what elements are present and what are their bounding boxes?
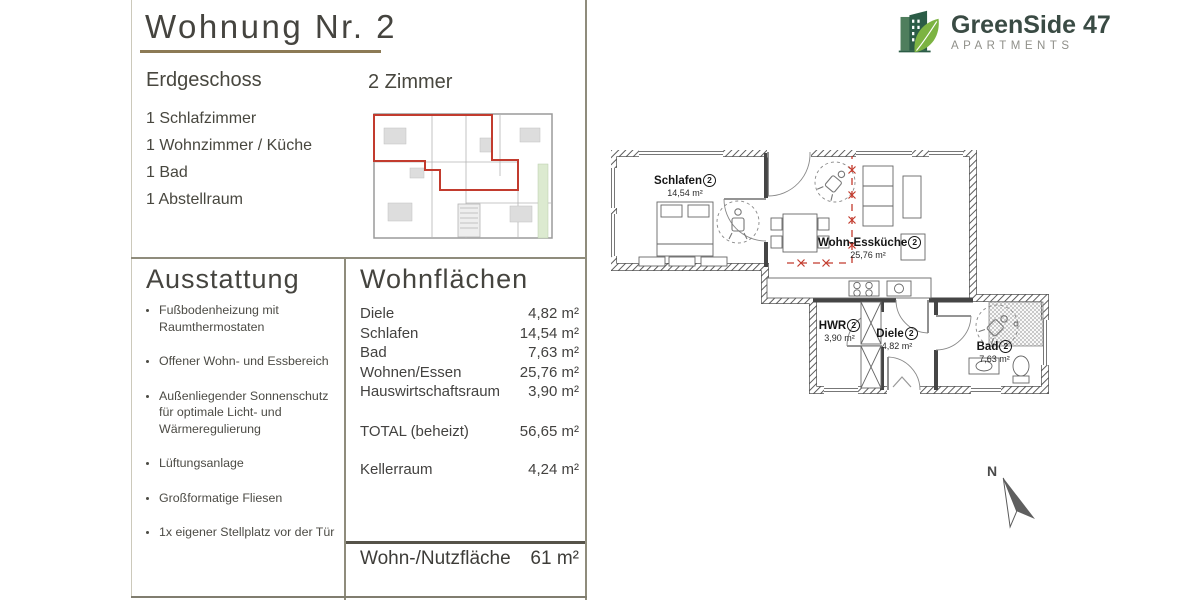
row-value: 14,54 m² [520, 324, 579, 344]
room-list-item: 1 Schlafzimmer [146, 105, 312, 132]
room-list: 1 Schlafzimmer 1 Wohnzimmer / Küche 1 Ba… [146, 105, 312, 213]
room-label-wohn-esskueche: Wohn-Essküche2 25,76 m² [818, 236, 918, 260]
keller-value: 4,24 m² [528, 460, 579, 480]
room-area: 4,82 m² [857, 341, 937, 351]
logo-text: GreenSide 47 APARTMENTS [951, 12, 1111, 52]
ausstattung-item: Großformatige Fliesen [159, 490, 339, 507]
rooms-count-label: 2 Zimmer [368, 71, 452, 94]
page-title: Wohnung Nr. 2 [145, 8, 397, 46]
ausstattung-item: Außenliegender Sonnenschutz für optimale… [159, 388, 339, 438]
logo-name: GreenSide 47 [951, 12, 1111, 38]
table-row: Hauswirtschaftsraum 3,90 m² [360, 382, 579, 402]
divider-bottom [131, 596, 587, 598]
row-label: Wohnen/Essen [360, 363, 461, 383]
total-label: TOTAL (beheizt) [360, 422, 469, 442]
ausstattung-item: Offener Wohn- und Essbereich [159, 353, 339, 370]
row-value: 4,82 m² [528, 304, 579, 324]
table-row: Diele 4,82 m² [360, 304, 579, 324]
room-number-badge: 2 [703, 174, 716, 187]
wohnflaechen-heading: Wohnflächen [360, 264, 528, 295]
room-label-bad: Bad2 7,63 m² [957, 340, 1032, 364]
title-underline [140, 50, 381, 53]
room-area: 7,63 m² [957, 354, 1032, 364]
summary-label: Wohn-/Nutzfläche [360, 549, 511, 569]
total-value: 56,65 m² [520, 422, 579, 442]
row-value: 7,63 m² [528, 343, 579, 363]
dining-table-icon [783, 214, 817, 252]
ausstattung-list: Fußbodenheizung mit Raumthermostaten Off… [146, 302, 339, 559]
ausstattung-item: Lüftungsanlage [159, 455, 339, 472]
room-number-badge: 2 [905, 327, 918, 340]
room-number-badge: 2 [999, 340, 1012, 353]
divider-horizontal-top [131, 257, 587, 259]
room-area: 14,54 m² [635, 188, 735, 198]
row-label: Bad [360, 343, 387, 363]
floor-label: Erdgeschoss [146, 69, 262, 92]
divider-summary [346, 541, 585, 544]
room-area: 25,76 m² [818, 250, 918, 260]
divider-right [585, 0, 587, 600]
wohnflaechen-table: Diele 4,82 m² Schlafen 14,54 m² Bad 7,63… [360, 304, 579, 402]
brand-logo: GreenSide 47 APARTMENTS [897, 6, 1111, 58]
table-row: Bad 7,63 m² [360, 343, 579, 363]
row-label: Hauswirtschaftsraum [360, 382, 500, 402]
row-value: 25,76 m² [520, 363, 579, 383]
table-row: Schlafen 14,54 m² [360, 324, 579, 344]
room-list-item: 1 Bad [146, 159, 312, 186]
building-overview-thumbnail [370, 108, 557, 245]
summary-value: 61 m² [530, 549, 579, 569]
ausstattung-heading: Ausstattung [146, 264, 300, 295]
ausstattung-item: 1x eigener Stellplatz vor der Tür [159, 524, 339, 541]
row-label: Schlafen [360, 324, 418, 344]
expose-page: Wohnung Nr. 2 Erdgeschoss 2 Zimmer 1 Sch… [0, 0, 1200, 600]
keller-label: Kellerraum [360, 460, 433, 480]
row-label: Diele [360, 304, 394, 324]
divider-middle [344, 258, 346, 600]
row-value: 3,90 m² [528, 382, 579, 402]
sofa-icon [863, 166, 893, 226]
summary-row: Wohn-/Nutzfläche 61 m² [360, 549, 579, 569]
room-label-schlafen: Schlafen2 14,54 m² [635, 174, 735, 198]
thumbnail-garden-strip [538, 164, 548, 238]
room-list-item: 1 Wohnzimmer / Küche [146, 132, 312, 159]
table-row: Wohnen/Essen 25,76 m² [360, 363, 579, 383]
north-label: N [987, 463, 997, 479]
total-row: TOTAL (beheizt) 56,65 m² [360, 422, 579, 442]
room-list-item: 1 Abstellraum [146, 186, 312, 213]
logo-subtitle: APARTMENTS [951, 40, 1111, 52]
keller-row: Kellerraum 4,24 m² [360, 460, 579, 480]
room-label-diele: Diele2 4,82 m² [857, 327, 937, 351]
north-arrow-icon: N [983, 460, 1038, 530]
building-leaf-icon [897, 6, 943, 58]
ausstattung-item: Fußbodenheizung mit Raumthermostaten [159, 302, 339, 335]
divider-left [131, 0, 132, 598]
